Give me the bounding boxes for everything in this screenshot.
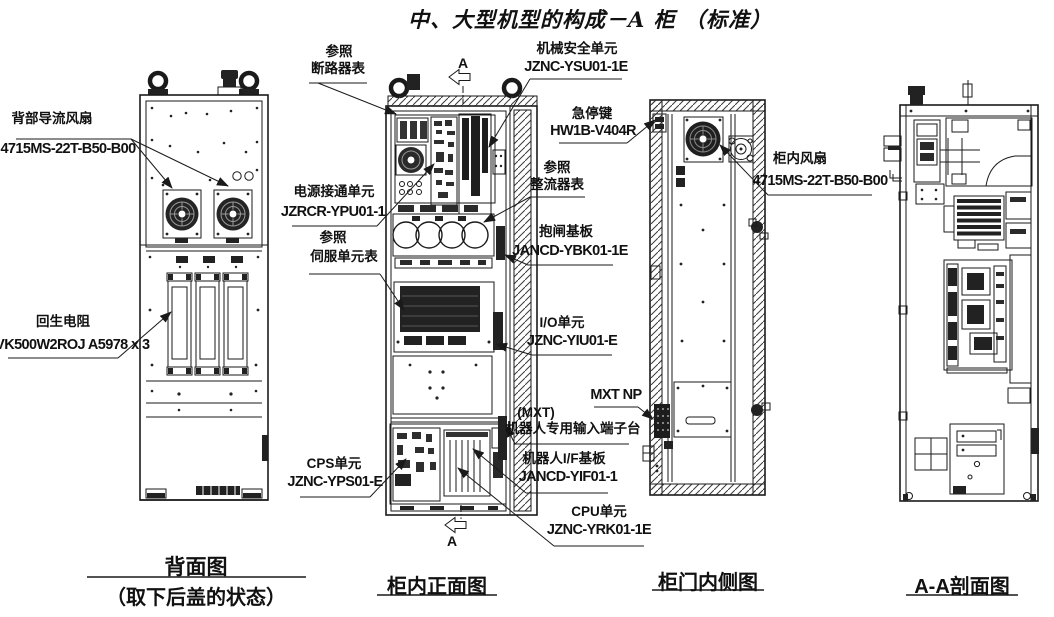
section-arrow-top [449,70,470,85]
relay-column [431,117,457,205]
door-bottom-panel [674,382,731,437]
eyebolt-icon [391,80,407,96]
callout-estop-part: HW1B-V404R [550,124,636,139]
callout-mxt-terminal-1: (MXT) [517,406,555,420]
terminal-row [149,256,260,268]
callout-brake-board-part: JANCD-YBK01-1E [512,244,628,259]
callout-servo-ref-1: 参照 [320,231,347,245]
callout-cps-unit-name: CPS单元 [307,457,362,471]
caption-section-view: A-A剖面图 [914,570,1010,599]
callout-rectifier-ref-1: 参照 [544,161,571,175]
callout-brake-board-name: 抱闸基板 [539,225,593,239]
callout-io-unit-part: JZNC-YIU01-E [527,334,617,349]
callout-regen-part: SMVK500W2ROJ A5978 x 3 [0,338,149,353]
callout-breaker-ref-1: 参照 [326,45,353,59]
page-title: 中、大型机型的构成－A 柜 （标准） [408,4,772,34]
callout-power-on-part: JZRCR-YPU01-1 [281,205,385,220]
callout-if-board-name: 机器人I/F基板 [522,452,605,466]
diagram-art: A A [0,0,1054,617]
contactor-row [398,205,478,212]
heatsink-icon [944,196,1004,250]
section-breaker [914,120,980,204]
door-view-drawing [643,100,770,495]
cable-gland-icon [908,86,925,95]
callout-io-unit-name: I/O单元 [539,316,584,330]
bottom-rack [390,424,506,511]
cable-gland-icon [218,70,241,95]
callout-safety-unit-part: JZNC-YSU01-1E [524,60,627,75]
callout-regen-name: 回生电阻 [36,315,90,329]
callout-rear-fan-part: 4715MS-22T-B50-B00 [0,142,135,157]
callout-cabinet-fan-name: 柜内风扇 [773,152,827,166]
section-marker-bottom-label: A [447,533,457,549]
cross-panel-icon [915,438,947,470]
callout-mxt-np: MXT NP [590,388,641,403]
callout-power-on-name: 电源接通单元 [294,185,375,199]
vent-and-feet [140,486,268,500]
callout-cabinet-fan-part: 4715MS-22T-B50-B00 [752,174,887,189]
power-on-unit-capacitors [393,214,494,256]
callout-rear-fan-name: 背部导流风扇 [12,112,93,126]
regen-resistor-icon [167,273,192,375]
eyebolt-icon [504,80,520,96]
callout-if-board-part: JANCD-YIF01-1 [519,470,618,485]
callout-safety-unit-name: 机械安全单元 [537,42,618,56]
caption-door-view: 柜门内侧图 [658,566,758,595]
section-view-drawing [884,80,1039,501]
caption-back-view-note: （取下后盖的状态） [106,581,286,610]
section-arrow-bottom [445,518,466,533]
callout-breaker-ref-2: 断路器表 [311,62,365,76]
back-view-drawing [140,70,268,500]
callout-rectifier-ref-2: 整流器表 [530,178,584,192]
callout-estop-name: 急停键 [572,107,613,121]
cover-plate [393,356,492,414]
callout-cpu-unit-part: JZNC-YRK01-1E [547,523,651,538]
callout-cps-unit-part: JZNC-YPS01-E [287,475,382,490]
diagram-canvas: A A [0,0,1054,617]
breaker-icon [396,118,428,195]
servo-unit-board [394,282,494,352]
callout-cpu-unit-name: CPU单元 [571,505,627,519]
callout-servo-ref-2: 伺服单元表 [310,250,378,264]
eyebolt-icon [148,73,259,95]
arrow-breaker [318,83,396,114]
caption-front-view: 柜内正面图 [387,570,487,599]
brake-board-icon [496,226,505,260]
servo-stack-icon [944,260,1012,373]
front-view-drawing [386,74,537,515]
arrow-rear-fan-1 [131,139,172,188]
callout-mxt-terminal-2: 机器人专用输入端子台 [506,422,641,436]
door-fan-icon [684,117,723,162]
rear-fan-icon [163,190,201,243]
bottom-unit-icon [950,424,1004,494]
caption-back-view: 背面图 [165,551,228,581]
safety-unit-board [459,114,491,214]
